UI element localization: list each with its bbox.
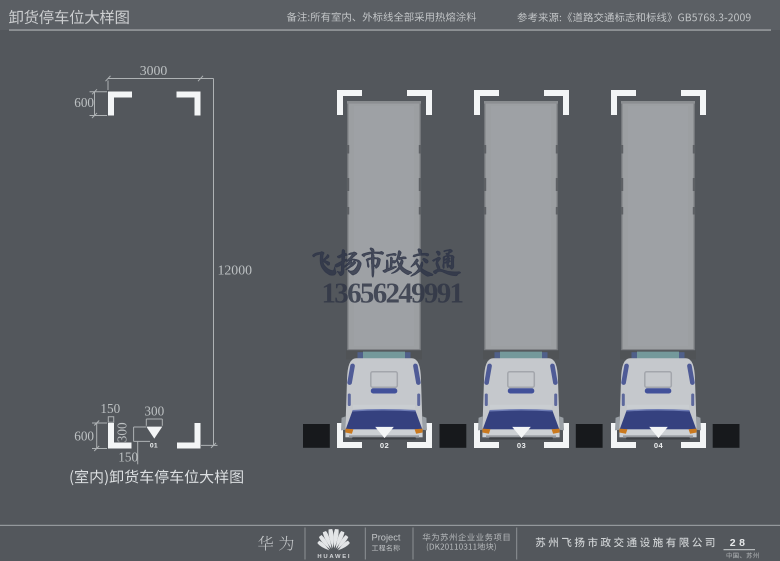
svg-text:600: 600 <box>74 95 94 110</box>
svg-text:Project: Project <box>372 532 401 542</box>
svg-text:300: 300 <box>115 422 130 442</box>
svg-text:600: 600 <box>74 428 94 443</box>
svg-text:300: 300 <box>144 404 164 419</box>
svg-text:01: 01 <box>150 442 158 449</box>
svg-text:03: 03 <box>517 441 526 450</box>
svg-text:28: 28 <box>730 537 749 549</box>
svg-text:HUAWEI: HUAWEI <box>317 554 351 560</box>
svg-text:13656249991: 13656249991 <box>322 278 463 310</box>
svg-text:3000: 3000 <box>140 63 168 78</box>
svg-text:150: 150 <box>118 449 138 464</box>
svg-text:12000: 12000 <box>218 263 253 278</box>
svg-text:150: 150 <box>100 401 120 416</box>
svg-text:02: 02 <box>380 441 389 450</box>
svg-text:04: 04 <box>654 441 664 450</box>
